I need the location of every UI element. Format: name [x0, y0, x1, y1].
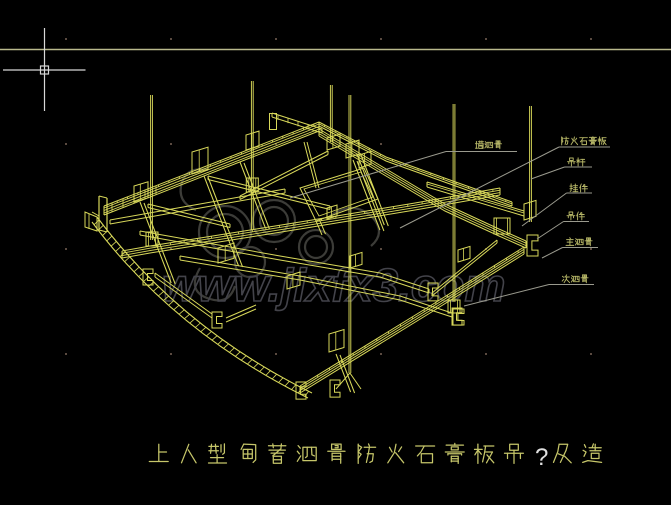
svg-text:?: ?: [535, 444, 548, 471]
svg-text:www.jixfx3.com: www.jixfx3.com: [162, 259, 505, 311]
